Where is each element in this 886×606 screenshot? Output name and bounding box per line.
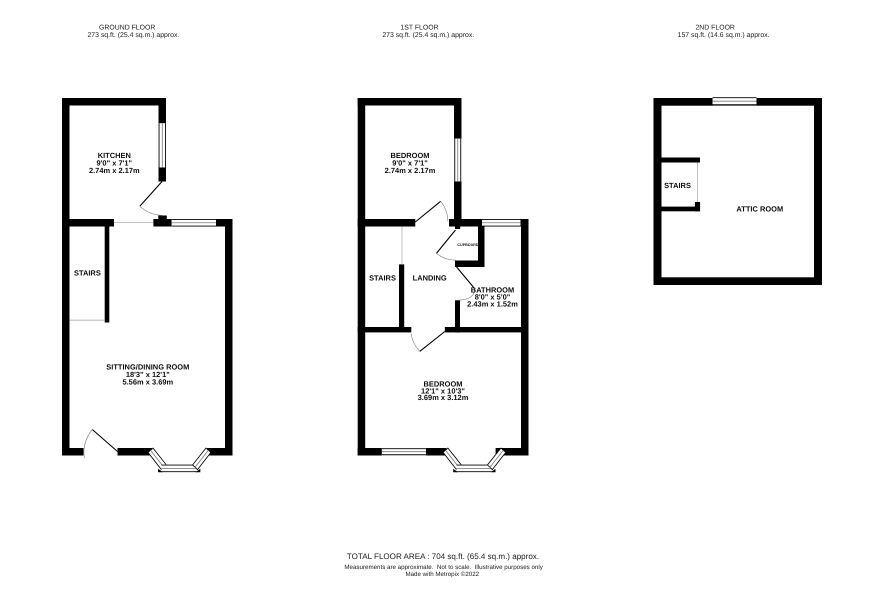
svg-text:1ST FLOOR: 1ST FLOOR <box>400 25 438 32</box>
svg-text:3.69m x 3.12m: 3.69m x 3.12m <box>418 393 469 402</box>
svg-text:2.43m x 1.52m: 2.43m x 1.52m <box>467 299 518 308</box>
svg-text:STAIRS: STAIRS <box>74 268 101 277</box>
svg-text:2ND FLOOR: 2ND FLOOR <box>695 25 734 32</box>
svg-text:2.74m x 2.17m: 2.74m x 2.17m <box>385 166 436 175</box>
svg-text:TOTAL FLOOR AREA : 704 sq.ft.: TOTAL FLOOR AREA : 704 sq.ft. (65.4 sq.m… <box>347 552 539 561</box>
svg-text:273 sq.ft. (25.4 sq.m.) approx: 273 sq.ft. (25.4 sq.m.) approx. <box>87 32 179 39</box>
svg-text:STAIRS: STAIRS <box>664 181 691 190</box>
svg-text:STAIRS: STAIRS <box>369 274 396 283</box>
svg-text:273 sq.ft. (25.4 sq.m.) approx: 273 sq.ft. (25.4 sq.m.) approx. <box>382 32 474 39</box>
svg-text:2.74m x 2.17m: 2.74m x 2.17m <box>89 166 140 175</box>
svg-text:Made with Metropix ©2022: Made with Metropix ©2022 <box>405 571 479 578</box>
svg-text:LANDING: LANDING <box>413 274 447 283</box>
svg-text:157 sq.ft. (14.6 sq.m.) approx: 157 sq.ft. (14.6 sq.m.) approx. <box>678 32 770 39</box>
svg-text:GROUND FLOOR: GROUND FLOOR <box>99 25 155 32</box>
svg-text:CUPBOARD: CUPBOARD <box>457 243 479 247</box>
svg-text:5.56m x 3.69m: 5.56m x 3.69m <box>122 377 173 386</box>
svg-text:ATTIC ROOM: ATTIC ROOM <box>736 204 783 213</box>
